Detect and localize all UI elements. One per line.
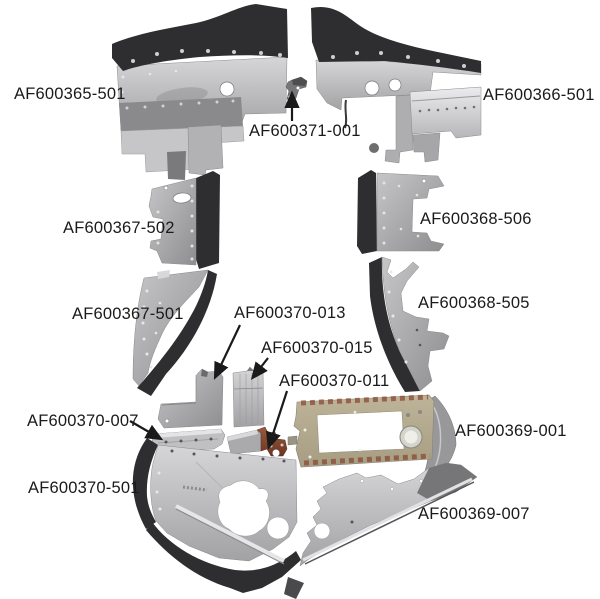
part-label-af600370-011: AF600370-011	[279, 372, 389, 390]
part-label-af600371-001: AF600371-001	[249, 122, 361, 140]
callout-arrow-af600370-011	[273, 391, 287, 434]
part-label-af600365-501: AF600365-501	[14, 85, 126, 103]
parts-diagram: AF600365-501 AF600366-501 AF600371-001 A…	[0, 0, 600, 599]
part-label-af600370-007: AF600370-007	[27, 412, 139, 430]
callout-arrow-af600370-015	[261, 358, 268, 367]
part-label-af600370-501: AF600370-501	[28, 479, 140, 497]
part-label-af600368-505: AF600368-505	[418, 294, 530, 312]
part-af600371-001-image	[286, 77, 307, 102]
part-af600369-007-image	[284, 463, 477, 599]
part-af600370-501-image	[133, 438, 301, 593]
part-label-af600368-506: AF600368-506	[420, 210, 532, 228]
part-label-af600366-501: AF600366-501	[483, 86, 595, 104]
part-label-af600370-013: AF600370-013	[234, 304, 346, 322]
part-label-af600367-502: AF600367-502	[63, 219, 175, 237]
part-label-af600369-001: AF600369-001	[455, 422, 567, 440]
part-label-af600369-007: AF600369-007	[418, 505, 530, 523]
part-af600370-011-image	[227, 427, 287, 457]
part-af600365-501-image	[112, 4, 288, 180]
part-af600370-015-image	[233, 367, 264, 427]
part-label-af600370-015: AF600370-015	[261, 339, 373, 357]
part-af600369-001-image	[288, 395, 456, 479]
part-label-af600367-501: AF600367-501	[72, 305, 184, 323]
part-af600370-013-image	[158, 369, 223, 428]
callout-arrow-af600370-013	[221, 325, 240, 365]
